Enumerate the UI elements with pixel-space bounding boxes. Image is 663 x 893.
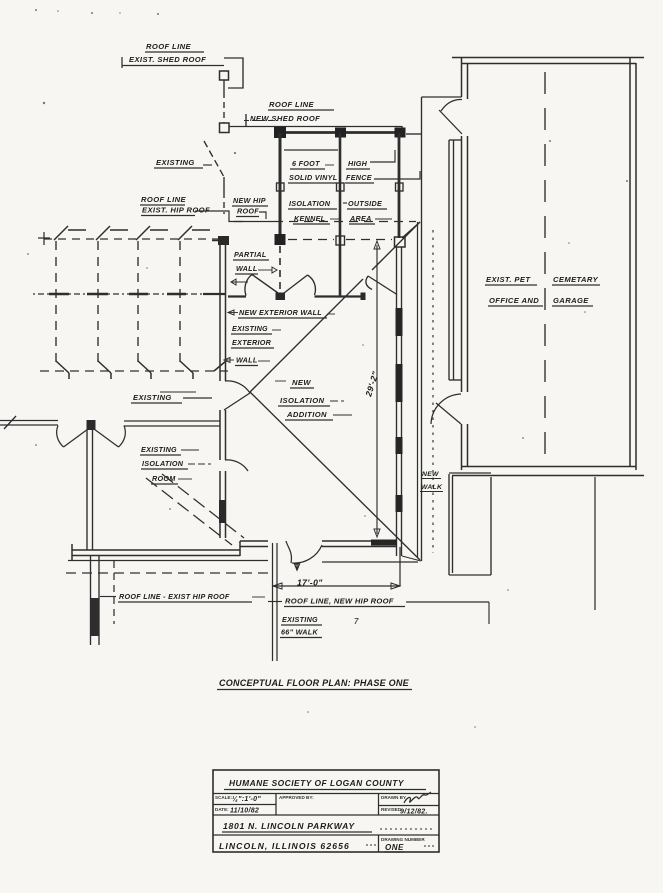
svg-text:EXIST. SHED ROOF: EXIST. SHED ROOF bbox=[129, 55, 206, 64]
svg-text:PARTIAL: PARTIAL bbox=[234, 250, 267, 259]
svg-text:DRAWING NUMBER: DRAWING NUMBER bbox=[381, 837, 425, 842]
svg-text:SCALE:: SCALE: bbox=[215, 795, 233, 800]
svg-text:REVISED: REVISED bbox=[381, 807, 402, 812]
svg-text:FENCE: FENCE bbox=[346, 173, 372, 182]
svg-text:DRAWN BY: DRAWN BY bbox=[381, 795, 406, 800]
svg-text:ISOLATION: ISOLATION bbox=[142, 459, 184, 468]
svg-text:KENNEL: KENNEL bbox=[294, 214, 325, 223]
svg-text:66" WALK: 66" WALK bbox=[281, 628, 318, 637]
svg-text:ISOLATION: ISOLATION bbox=[280, 396, 324, 405]
svg-text:ADDITION: ADDITION bbox=[286, 410, 327, 419]
svg-text:NEW HIP: NEW HIP bbox=[233, 196, 266, 205]
svg-text:NEW SHED ROOF: NEW SHED ROOF bbox=[250, 114, 320, 123]
svg-text:ROOF: ROOF bbox=[237, 207, 259, 216]
svg-text:ROOF LINE: ROOF LINE bbox=[269, 100, 314, 109]
svg-text:ROOF LINE, NEW HIP ROOF: ROOF LINE, NEW HIP ROOF bbox=[285, 597, 394, 606]
svg-text:EXISTING: EXISTING bbox=[141, 445, 177, 454]
svg-text:EXISTING: EXISTING bbox=[156, 158, 195, 167]
svg-text:EXISTING: EXISTING bbox=[232, 324, 268, 333]
svg-text:NEW: NEW bbox=[422, 471, 439, 478]
svg-text:NEW EXTERIOR WALL: NEW EXTERIOR WALL bbox=[239, 308, 322, 317]
svg-text:ISOLATION: ISOLATION bbox=[289, 199, 331, 208]
svg-text:DATE:: DATE: bbox=[215, 807, 229, 812]
svg-text:6 FOOT: 6 FOOT bbox=[292, 159, 320, 168]
svg-text:WALK: WALK bbox=[421, 484, 443, 491]
svg-text:11/10/82: 11/10/82 bbox=[230, 808, 259, 815]
svg-text:17'-0": 17'-0" bbox=[297, 578, 323, 588]
svg-text:WALL: WALL bbox=[236, 356, 258, 365]
svg-text:ONE: ONE bbox=[385, 843, 404, 852]
svg-text:EXIST. HIP ROOF: EXIST. HIP ROOF bbox=[142, 206, 210, 215]
svg-text:¼":1'-0": ¼":1'-0" bbox=[232, 796, 261, 803]
svg-text:APPROVED BY:: APPROVED BY: bbox=[279, 795, 314, 800]
svg-text:HIGH: HIGH bbox=[348, 159, 368, 168]
svg-text:ROOF LINE: ROOF LINE bbox=[141, 195, 186, 204]
svg-text:CEMETARY: CEMETARY bbox=[553, 275, 599, 284]
svg-text:ROOF LINE - EXIST HIP ROOF: ROOF LINE - EXIST HIP ROOF bbox=[119, 592, 230, 601]
svg-text:EXIST. PET: EXIST. PET bbox=[486, 275, 531, 284]
svg-text:OFFICE AND: OFFICE AND bbox=[489, 296, 539, 305]
svg-text:1801 N. LINCOLN PARKWAY: 1801 N. LINCOLN PARKWAY bbox=[223, 821, 355, 831]
svg-text:SOLID VINYL: SOLID VINYL bbox=[289, 173, 337, 182]
svg-text:ROOF LINE: ROOF LINE bbox=[146, 42, 191, 51]
svg-text:HUMANE SOCIETY OF LOGAN CO: HUMANE SOCIETY OF LOGAN COUNTY bbox=[229, 778, 405, 788]
svg-text:EXTERIOR: EXTERIOR bbox=[232, 338, 272, 347]
svg-text:AREA: AREA bbox=[349, 214, 372, 223]
svg-text:EXISTING: EXISTING bbox=[133, 393, 172, 402]
svg-text:7: 7 bbox=[354, 617, 359, 626]
svg-text:OUTSIDE: OUTSIDE bbox=[348, 199, 382, 208]
svg-text:NEW: NEW bbox=[292, 378, 311, 387]
svg-text:CONCEPTUAL FLOOR PLAN: PHASE O: CONCEPTUAL FLOOR PLAN: PHASE ONE bbox=[219, 678, 410, 688]
svg-text:EXISTING: EXISTING bbox=[282, 615, 318, 624]
svg-text:WALL: WALL bbox=[236, 264, 258, 273]
svg-text:LINCOLN, ILLINOIS 62656: LINCOLN, ILLINOIS 62656 bbox=[219, 841, 350, 851]
svg-text:GARAGE: GARAGE bbox=[553, 296, 589, 305]
